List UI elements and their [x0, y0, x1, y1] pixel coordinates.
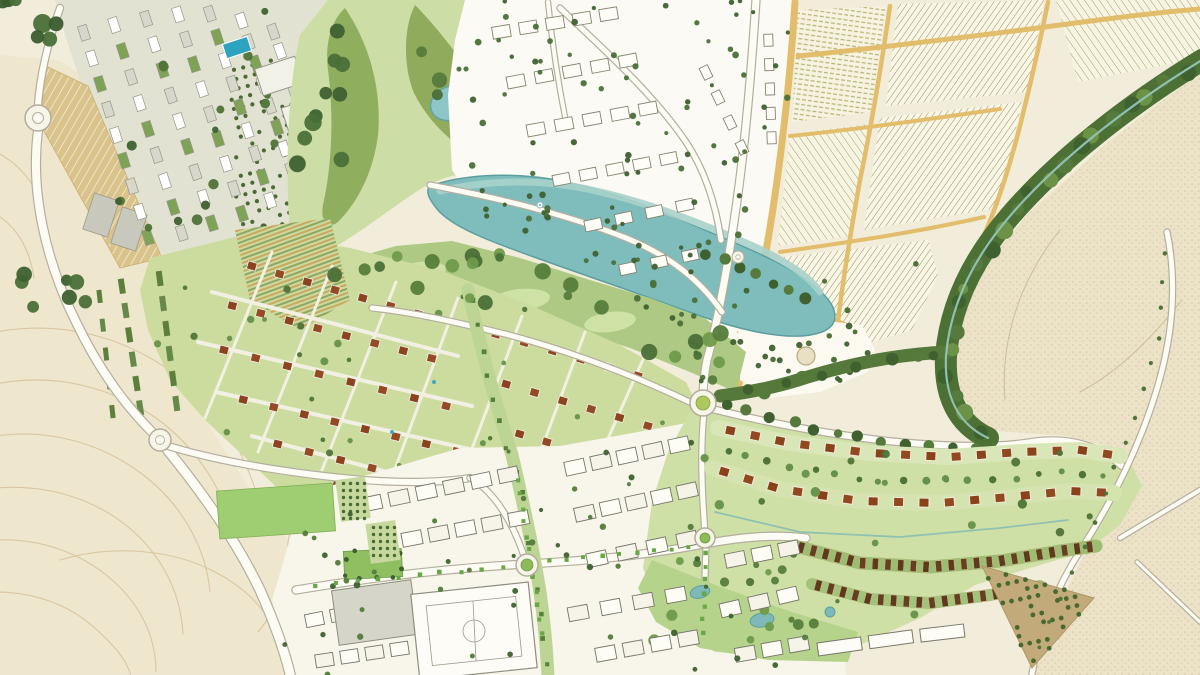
- garden-knot: [797, 347, 815, 365]
- garden-pool: [390, 430, 394, 434]
- sports-hall-roof: [332, 580, 419, 646]
- town-north-road: [702, 412, 705, 534]
- masterplan-screenshot: [0, 0, 1200, 675]
- roundabout-island: [33, 113, 44, 124]
- roundabout-island: [700, 533, 710, 543]
- vineyard-parcel: [792, 6, 886, 122]
- vineyard-parcel: [886, 0, 1044, 106]
- park-pond: [825, 607, 835, 617]
- roundabout-island: [736, 255, 740, 259]
- lake-fountain-dot: [539, 204, 541, 206]
- masterplan-map: [0, 0, 1200, 675]
- sports-field: [216, 483, 335, 539]
- roundabout-island: [696, 396, 710, 410]
- garden-pool: [432, 380, 436, 384]
- roundabout-island: [521, 559, 533, 571]
- roundabout-island: [156, 436, 165, 445]
